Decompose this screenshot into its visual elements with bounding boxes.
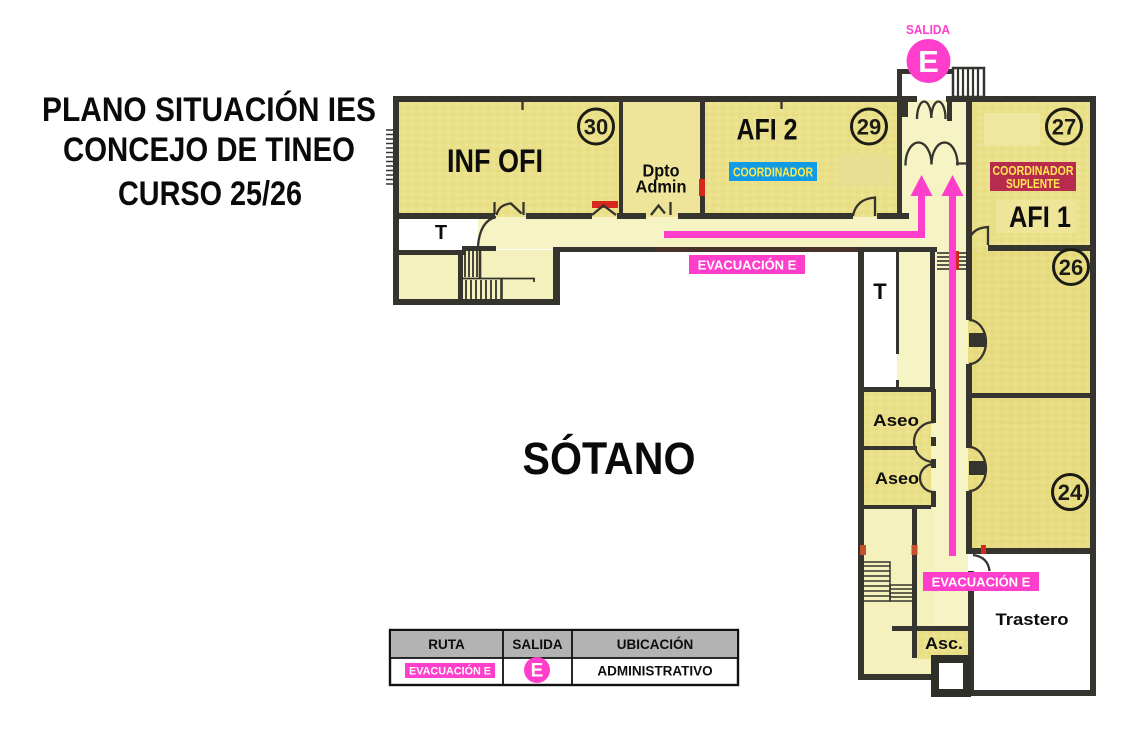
svg-text:T: T bbox=[435, 222, 447, 244]
svg-text:EVACUACIÓN E: EVACUACIÓN E bbox=[698, 258, 797, 273]
svg-text:INF OFI: INF OFI bbox=[447, 143, 543, 179]
svg-text:PLANO SITUACIÓN IES: PLANO SITUACIÓN IES bbox=[42, 91, 376, 129]
svg-text:24: 24 bbox=[1058, 480, 1083, 505]
svg-text:27: 27 bbox=[1052, 115, 1076, 140]
svg-text:Aseo: Aseo bbox=[875, 470, 919, 488]
svg-text:Aseo: Aseo bbox=[873, 412, 919, 430]
svg-text:30: 30 bbox=[584, 115, 608, 140]
svg-text:E: E bbox=[531, 661, 544, 682]
svg-text:Admin: Admin bbox=[636, 177, 687, 197]
svg-text:AFI 1: AFI 1 bbox=[1009, 201, 1071, 234]
svg-text:Asc.: Asc. bbox=[925, 634, 963, 653]
svg-text:SÓTANO: SÓTANO bbox=[523, 433, 696, 484]
svg-text:E: E bbox=[918, 44, 939, 79]
svg-text:26: 26 bbox=[1059, 255, 1083, 280]
svg-text:SALIDA: SALIDA bbox=[906, 22, 951, 37]
svg-text:CURSO 25/26: CURSO 25/26 bbox=[118, 175, 302, 213]
svg-text:CONCEJO DE TINEO: CONCEJO DE TINEO bbox=[63, 131, 355, 169]
svg-text:EVACUACIÓN E: EVACUACIÓN E bbox=[932, 575, 1031, 590]
svg-text:RUTA: RUTA bbox=[428, 637, 465, 652]
svg-text:Trastero: Trastero bbox=[996, 610, 1069, 629]
svg-text:AFI 2: AFI 2 bbox=[737, 114, 798, 147]
svg-text:T: T bbox=[873, 279, 887, 304]
svg-text:29: 29 bbox=[857, 115, 881, 140]
svg-text:UBICACIÓN: UBICACIÓN bbox=[617, 637, 694, 652]
svg-text:EVACUACIÓN E: EVACUACIÓN E bbox=[409, 665, 491, 678]
svg-text:SALIDA: SALIDA bbox=[512, 637, 563, 652]
svg-text:SUPLENTE: SUPLENTE bbox=[1006, 176, 1060, 191]
svg-text:COORDINADOR: COORDINADOR bbox=[733, 166, 813, 180]
svg-text:ADMINISTRATIVO: ADMINISTRATIVO bbox=[597, 664, 712, 679]
